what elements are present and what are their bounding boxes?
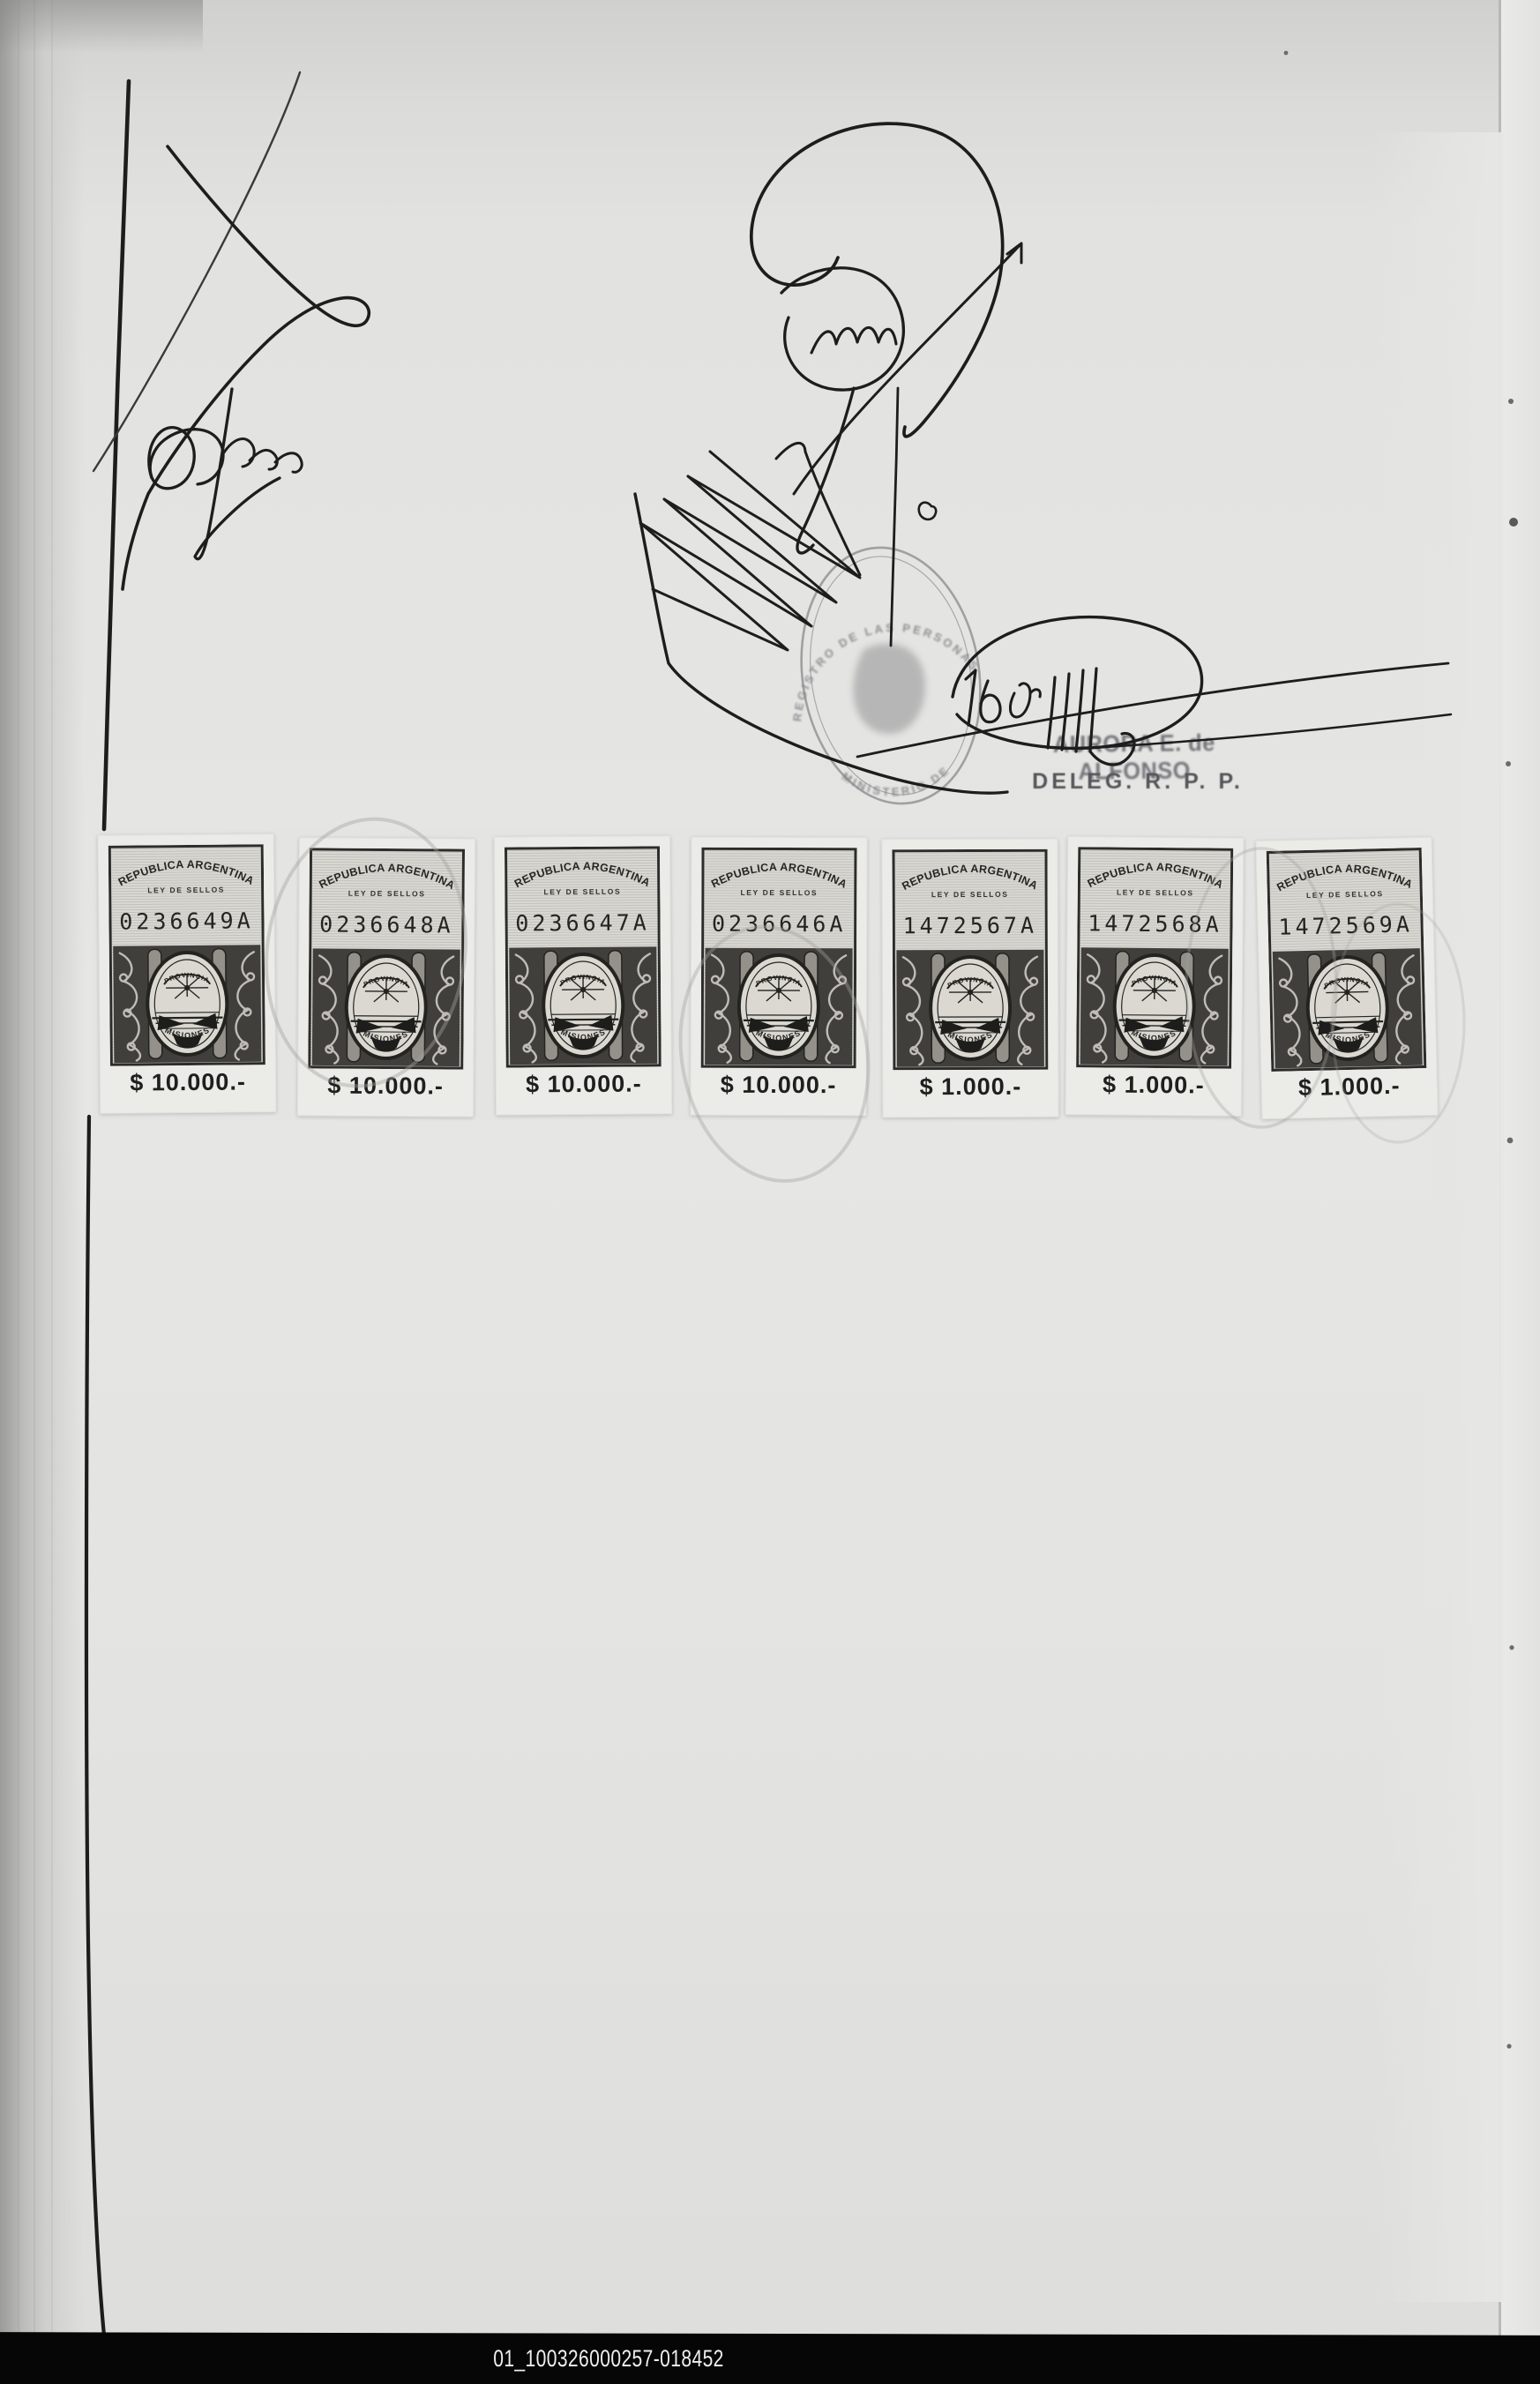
page-crease: [18, 0, 19, 2384]
revenue-stamp-6: 1472568A $ 1.000.-: [1065, 836, 1245, 1117]
stamp-value: $ 10.000.-: [691, 1072, 867, 1100]
stamp-value: $ 10.000.-: [297, 1072, 474, 1100]
official-seal: REGISTRO DE LAS PERSONAS MINISTERIO DE: [759, 526, 1023, 826]
ruled-lines-fade: [1372, 132, 1505, 2302]
corner-shadow: [0, 0, 203, 53]
stamp-value: $ 1.000.-: [1260, 1072, 1438, 1103]
signature-flourish-x: [93, 72, 369, 589]
margin-line: [86, 81, 129, 2335]
revenue-stamp-3: 0236647A $ 10.000.-: [494, 835, 672, 1115]
stamp-serial: 1472569A: [1267, 911, 1424, 940]
seal-center-emblem: [853, 644, 925, 734]
revenue-stamp-2: 0236648A $ 10.000.-: [297, 837, 475, 1117]
stamp-value: $ 1.000.-: [1065, 1071, 1242, 1100]
official-role-stamp: DELEG. R. P. P.: [1005, 769, 1270, 795]
stamp-serial: 1472567A: [893, 913, 1048, 939]
stamp-serial: 0236646A: [701, 911, 856, 938]
signature-main: [751, 123, 1021, 553]
scan-footer-bar: [0, 2332, 1540, 2384]
page-crease: [34, 0, 35, 2384]
stamp-value: $ 10.000.-: [100, 1068, 276, 1097]
book-binding-shadow: [0, 0, 85, 2384]
revenue-stamp-7: 1472569A $ 1.000.-: [1255, 837, 1438, 1119]
stamp-value: $ 10.000.-: [496, 1070, 672, 1098]
revenue-stamp-5: 1472567A $ 1.000.-: [881, 839, 1058, 1118]
stamp-serial: 1472568A: [1077, 910, 1232, 938]
signature-cursive: [149, 389, 302, 559]
stamp-value: $ 1.000.-: [882, 1073, 1058, 1102]
page-crease: [51, 0, 53, 2384]
next-page-edge: [1501, 0, 1540, 2384]
stamp-serial: 0236647A: [505, 909, 660, 936]
stamp-serial: 0236648A: [309, 911, 464, 938]
scanned-registry-page: REGISTRO DE LAS PERSONAS MINISTERIO DE A…: [0, 0, 1540, 2384]
revenue-stamp-4: 0236646A $ 10.000.-: [690, 837, 867, 1117]
stamp-serial: 0236649A: [108, 908, 264, 935]
scan-code: 01_100326000257-018452: [478, 2344, 739, 2373]
revenue-stamp-1: 0236649A $ 10.000.-: [98, 833, 277, 1114]
